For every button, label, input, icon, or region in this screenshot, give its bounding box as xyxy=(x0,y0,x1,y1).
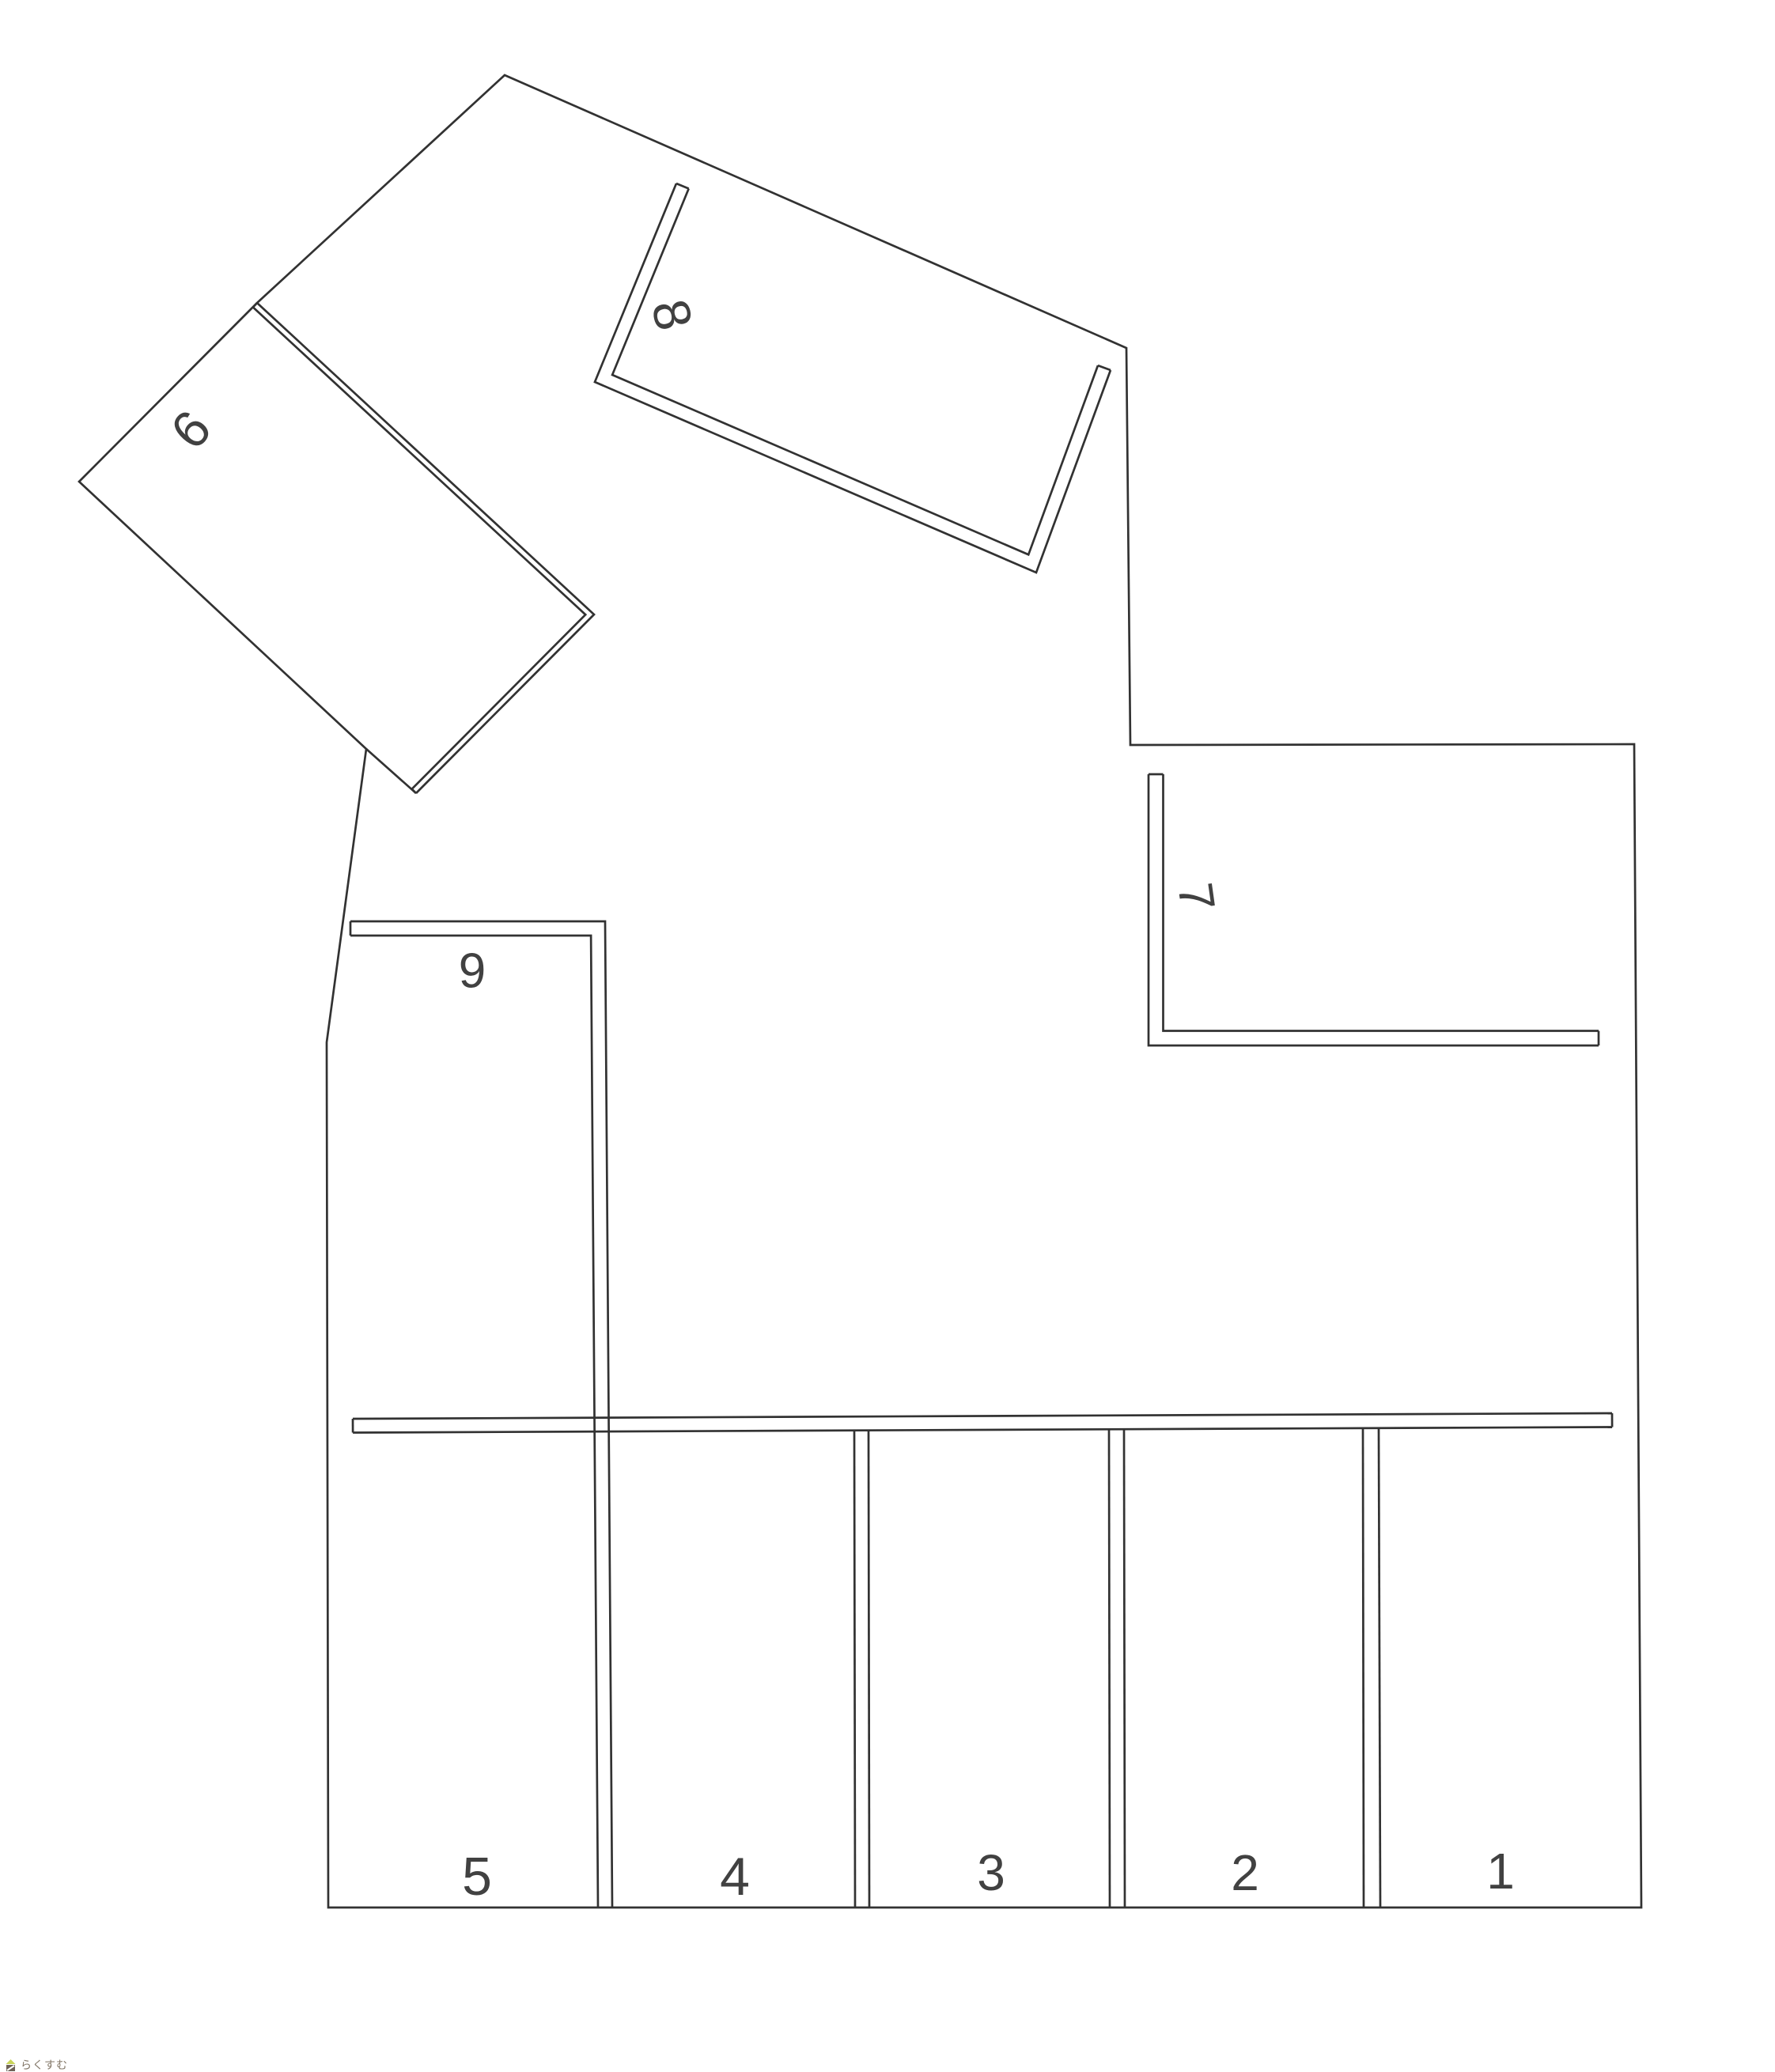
svg-text:4: 4 xyxy=(720,1847,750,1907)
svg-text:1: 1 xyxy=(1486,1843,1515,1900)
svg-text:9: 9 xyxy=(459,944,486,999)
svg-text:2: 2 xyxy=(1231,1844,1259,1901)
svg-text:3: 3 xyxy=(977,1844,1005,1901)
svg-text:5: 5 xyxy=(462,1847,492,1907)
svg-text:らくすむ: らくすむ xyxy=(21,2059,68,2071)
